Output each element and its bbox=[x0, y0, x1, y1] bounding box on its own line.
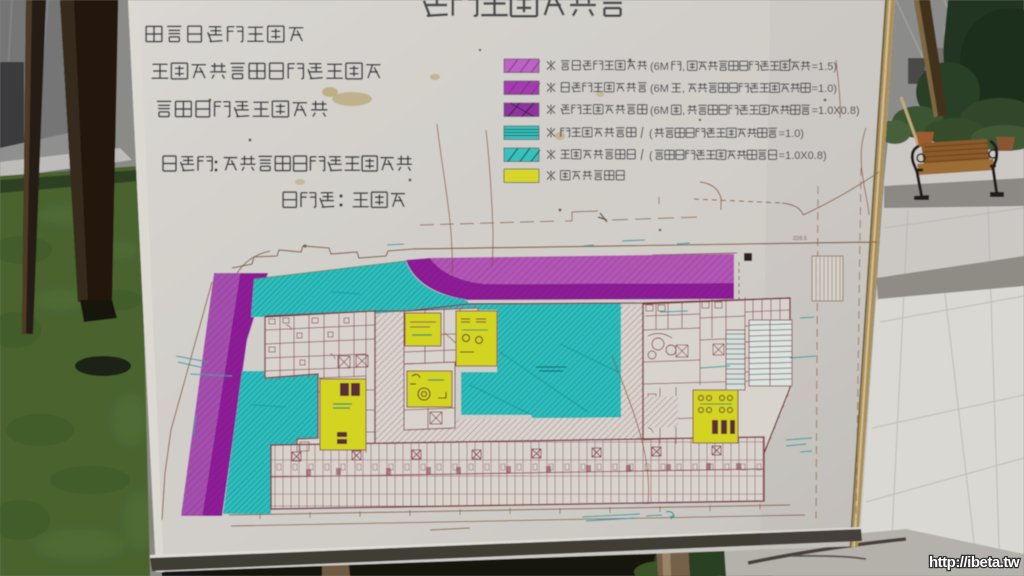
svg-text:(6M: (6M bbox=[650, 105, 669, 117]
svg-text:=1.0): =1.0) bbox=[779, 128, 804, 140]
svg-text:(: ( bbox=[649, 150, 653, 162]
svg-text:228.5: 228.5 bbox=[793, 236, 807, 242]
svg-text:=1.0): =1.0) bbox=[812, 83, 837, 95]
svg-text:=1.5): =1.5) bbox=[812, 61, 837, 73]
svg-text:,: , bbox=[682, 83, 685, 95]
svg-text:(6M: (6M bbox=[650, 61, 669, 73]
svg-text:,: , bbox=[682, 105, 685, 117]
svg-text:=1.0X0.8): =1.0X0.8) bbox=[779, 150, 827, 162]
svg-text:,: , bbox=[682, 61, 685, 73]
svg-text:http://ibeta.tw: http://ibeta.tw bbox=[929, 554, 1020, 571]
svg-text:(6M: (6M bbox=[650, 83, 669, 95]
svg-text:(: ( bbox=[649, 128, 653, 140]
svg-text:=1.0X0.8): =1.0X0.8) bbox=[812, 105, 860, 117]
